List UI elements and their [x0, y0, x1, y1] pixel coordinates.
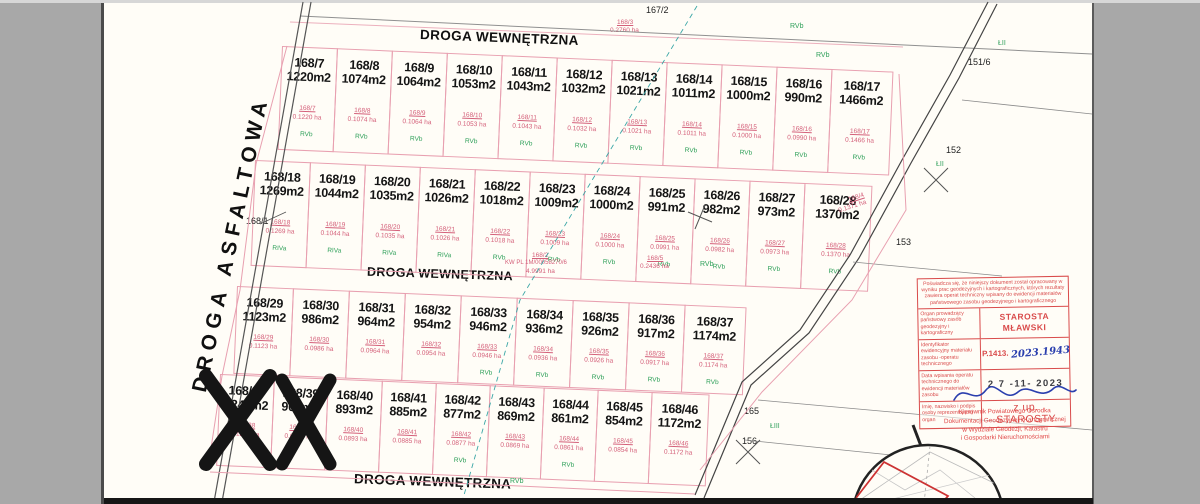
land-use-label: ŁII	[998, 40, 1006, 47]
parcel-168-44: 168/44861m2168/440.0861 haRVb	[540, 388, 599, 482]
parcel-label-168-1: 168/1	[246, 216, 269, 226]
soil-class-label	[235, 359, 290, 361]
parcel-168-7: 168/71220m2168/70.1220 haRVb	[278, 46, 338, 152]
parcel-pink-label: 168/440.0861 ha	[542, 434, 596, 454]
soil-class-label	[326, 452, 379, 454]
parcel-pink-label: 168/90.1064 ha	[390, 108, 445, 128]
soil-class-label: RVb	[499, 139, 553, 148]
parcel-pink-label: 168/350.0926 ha	[571, 347, 627, 367]
parcel-id-area-label: 168/71220m2	[281, 55, 336, 86]
scan-top-edge	[0, 0, 1200, 3]
parcel-pink-label: 168/300.0986 ha	[291, 335, 347, 355]
soil-class-label	[596, 463, 649, 465]
parcel-label-156: 156	[742, 436, 757, 446]
soil-class-label: RVb	[554, 142, 608, 151]
parcel-id-area-label: 168/461172m2	[651, 401, 708, 432]
parcel-168-40: 168/40893m2168/400.0893 ha	[324, 378, 383, 472]
soil-class-label: RVb	[626, 376, 681, 385]
parcel-pink-label: 168/100.1053 ha	[445, 111, 500, 131]
parcel-id-area-label: 168/371174m2	[684, 314, 745, 345]
parcel-pink-label: 168/320.0954 ha	[403, 340, 459, 360]
paper-left-edge	[101, 0, 104, 504]
paper-right-edge	[1092, 0, 1094, 504]
parcel-id-area-label: 168/36917m2	[628, 311, 684, 342]
parcel-pink-label: 168/150.1000 ha	[719, 122, 774, 142]
parcel-label-153: 153	[896, 237, 911, 247]
parcel-pink-label: 168/420.0877 ha	[434, 430, 488, 450]
parcel-pink-label: 168/370.1174 ha	[683, 351, 744, 371]
parcel-label-152: 152	[946, 145, 961, 155]
parcel-pink-label: 168/340.0936 ha	[515, 344, 571, 364]
stamp-row-label: Identyfikator ewidencyjny materiału zaso…	[919, 339, 982, 370]
parcel-pink-label: 168/380.1245 ha	[218, 421, 272, 441]
soil-class-label	[347, 364, 402, 366]
parcel-id-area-label: 168/42877m2	[435, 392, 489, 423]
soil-class-label: RVb	[458, 369, 513, 378]
parcel-id-area-label: 168/32954m2	[404, 302, 460, 333]
parcel-id-area-label: 168/30986m2	[292, 297, 348, 328]
stamp-row-authority: Organ prowadzący państwowy zasób geodezy…	[918, 307, 1069, 341]
land-use-label: ŁII	[936, 161, 944, 168]
parcel-pink-label: 168/460.1172 ha	[650, 439, 707, 459]
parcel-id-area-label: 168/151000m2	[721, 73, 776, 104]
parcel-168-20: 168/201035m2168/200.1035 haRIVa	[360, 165, 420, 273]
parcel-168-30: 168/30986m2168/300.0986 ha	[289, 288, 350, 378]
parcel-pink-label: 168/400.0893 ha	[326, 425, 380, 445]
parcel-168-38-crossed: 168/381245m2168/380.1245 ha	[216, 374, 275, 468]
soil-class-label: RIVa	[417, 251, 471, 260]
parcel-pink-label: 168/280.1370 ha	[802, 241, 869, 261]
soil-class-label: RVb	[790, 23, 804, 30]
soil-class-label: RVb	[389, 135, 443, 144]
soil-class-label: RVb	[433, 456, 486, 465]
parcel-pink-label: 168/270.0973 ha	[747, 238, 802, 258]
parcel-pink-label: 168/140.1011 ha	[665, 120, 720, 140]
parcel-pink-label: 168/390.0901 ha	[272, 423, 326, 443]
parcel-168-32: 168/32954m2168/320.0954 ha	[401, 293, 462, 383]
parcel-168-18: 168/181269m2168/180.1269 haRIVa	[251, 160, 311, 268]
stamp-identifier-value: P.1413. 2023.1943	[981, 338, 1071, 370]
soil-class-label: RVb	[514, 371, 569, 380]
parcel-id-area-label: 168/16990m2	[776, 76, 831, 107]
parcel-label-168-3: 168/3	[617, 19, 633, 26]
parcel-id-area-label: 168/41885m2	[381, 390, 435, 421]
parcel-168-43: 168/43869m2168/430.0869 ha	[486, 385, 545, 479]
parcel-area-168-3: 0.2760 ha	[610, 27, 639, 34]
parcel-id-area-label: 168/121032m2	[556, 67, 611, 98]
parcel-id-area-label: 168/241000m2	[584, 183, 639, 214]
parcel-area-168-5: 0.2436 ha	[640, 263, 669, 270]
parcel-id-area-label: 168/211026m2	[419, 176, 474, 207]
parcel-pink-label: 168/200.1035 ha	[363, 222, 418, 242]
parcel-168-10: 168/101053m2168/100.1053 haRVb	[443, 53, 503, 159]
parcel-id-area-label: 168/201035m2	[364, 174, 419, 205]
parcel-168-13: 168/131021m2168/130.1021 haRVb	[607, 60, 667, 166]
parcel-id-area-label: 168/111043m2	[501, 64, 556, 95]
parcel-pink-label: 168/210.1026 ha	[418, 225, 473, 245]
soil-class-label: RVb	[774, 151, 828, 160]
land-use-label: ŁIII	[770, 423, 780, 430]
parcel-168-15: 168/151000m2168/150.1000 haRVb	[717, 64, 777, 170]
parcel-id-area-label: 168/91064m2	[391, 60, 446, 91]
parcel-pink-label: 168/110.1043 ha	[500, 113, 555, 133]
identifier-prefix: P.1413.	[982, 349, 1009, 358]
soil-class-label: RVb	[816, 52, 830, 59]
soil-class-label: RIVa	[252, 244, 306, 253]
soil-class-label	[380, 454, 433, 456]
stamp-row-label: Organ prowadzący państwowy zasób geodezy…	[918, 308, 981, 339]
parcel-168-12: 168/121032m2168/120.1032 haRVb	[552, 57, 612, 163]
stamp-authority-value: STAROSTA MŁAWSKI	[980, 307, 1069, 339]
parcel-168-8: 168/81074m2168/80.1074 haRVb	[333, 48, 393, 154]
scanned-cadastral-map: DROGA WEWNĘTRZNA DROGA WEWNĘTRZNA DROGA …	[0, 0, 1200, 504]
parcel-id-area-label: 168/101053m2	[446, 62, 501, 93]
soil-class-label: RVb	[747, 265, 801, 274]
parcel-id-area-label: 168/131021m2	[611, 69, 666, 100]
parcel-id-area-label: 168/27973m2	[749, 190, 804, 221]
parcel-id-area-label: 168/221018m2	[474, 178, 529, 209]
parcel-id-area-label: 168/231009m2	[529, 181, 584, 212]
soil-class-label: RVb	[570, 373, 625, 382]
parcel-168-39-crossed: 168/39901m2168/390.0901 ha	[270, 376, 329, 470]
parcel-pink-label: 168/360.0917 ha	[627, 349, 683, 369]
parcel-pink-label: 168/410.0885 ha	[380, 427, 434, 447]
parcel-id-area-label: 168/25991m2	[639, 185, 694, 216]
parcel-168-41: 168/41885m2168/410.0885 ha	[378, 381, 437, 475]
stamp-certification-text: Poświadcza się, że niniejszy dokument zo…	[918, 277, 1068, 310]
soil-class-label	[291, 362, 346, 364]
parcel-168-24: 168/241000m2168/240.1000 haRVb	[580, 174, 640, 282]
parcel-id-area-label: 168/35926m2	[572, 309, 628, 340]
parcel-id-area-label: 168/26982m2	[694, 187, 749, 218]
parcel-id-area-label: 168/171466m2	[831, 78, 892, 109]
parcel-id-area-label: 168/381245m2	[219, 383, 273, 414]
parcel-168-33: 168/33946m2168/330.0946 haRVb	[457, 295, 518, 385]
parcel-id-area-label: 168/43869m2	[489, 394, 543, 425]
parcel-pink-label: 168/240.1000 ha	[583, 232, 638, 252]
soil-class-label: RVb	[664, 146, 718, 155]
soil-class-label: RVb	[802, 267, 868, 277]
parcel-168-29: 168/291123m2168/290.1123 ha	[233, 286, 294, 376]
parcel-168-42: 168/42877m2168/420.0877 haRVb	[432, 383, 491, 477]
soil-class-label: RVb	[609, 144, 663, 153]
parcel-id-area-label: 168/81074m2	[336, 57, 391, 88]
soil-class-label: RVb	[682, 378, 742, 388]
stamp-footer-title: Kierownik Powiatowego Ośrodka Dokumentac…	[920, 407, 1091, 445]
parcel-id-area-label: 168/44861m2	[543, 397, 597, 428]
parcel-id-area-label: 168/181269m2	[254, 169, 309, 200]
parcel-id-area-label: 168/40893m2	[327, 388, 381, 419]
parcel-168-16: 168/16990m2168/160.0990 haRVb	[772, 67, 832, 173]
parcel-pink-label: 168/120.1032 ha	[555, 115, 610, 135]
soil-class-label	[650, 465, 706, 467]
soil-class-label: RIVa	[307, 247, 361, 256]
parcel-id-area-label: 168/33946m2	[460, 304, 516, 335]
soil-class-label: RIVa	[362, 249, 416, 258]
parcel-label-168-2: 168/2	[532, 252, 548, 259]
soil-class-label	[272, 449, 325, 451]
stamp-row-identifier: Identyfikator ewidencyjny materiału zaso…	[919, 338, 1070, 372]
parcel-id-area-label: 168/191044m2	[309, 171, 364, 202]
soil-class-label: RVb	[334, 133, 388, 142]
parcel-pink-label: 168/450.0854 ha	[596, 437, 650, 457]
parcel-id-area-label: 168/39901m2	[273, 385, 327, 416]
parcel-168-17: 168/171466m2168/170.1466 haRVb	[827, 69, 893, 176]
parcel-168-31: 168/31964m2168/310.0964 ha	[345, 291, 406, 381]
parcel-pink-label: 168/70.1220 ha	[280, 104, 335, 124]
parcel-168-34: 168/34936m2168/340.0936 haRVb	[513, 298, 574, 388]
soil-class-label: RVb	[700, 261, 714, 268]
parcel-168-45: 168/45854m2168/450.0854 ha	[594, 390, 653, 484]
parcel-pink-label: 168/190.1044 ha	[308, 220, 363, 240]
parcel-pink-label: 168/290.1123 ha	[235, 333, 291, 353]
handwritten-identifier: 2023.1943	[1010, 345, 1070, 361]
parcel-label-151-6: 151/6	[968, 57, 991, 67]
parcel-pink-label: 168/160.0990 ha	[774, 124, 829, 144]
soil-class-label	[488, 459, 541, 461]
parcel-168-27: 168/27973m2168/270.0973 haRVb	[745, 181, 805, 289]
parcel-pink-label: 168/80.1074 ha	[335, 106, 390, 126]
parcel-pink-label: 168/430.0869 ha	[488, 432, 542, 452]
soil-class-label: RVb	[279, 130, 333, 139]
parcel-id-area-label: 168/31964m2	[348, 300, 404, 331]
parcel-168-9: 168/91064m2168/90.1064 haRVb	[388, 51, 448, 157]
parcel-pink-label: 168/310.0964 ha	[347, 337, 403, 357]
parcel-168-46: 168/461172m2168/460.1172 ha	[648, 392, 710, 486]
parcel-label-168-5: 168/5	[647, 255, 663, 262]
parcel-id-area-label: 168/34936m2	[516, 307, 572, 338]
parcel-pink-label: 168/250.0991 ha	[638, 234, 693, 254]
parcel-id-area-label: 168/291123m2	[236, 295, 292, 326]
parcel-168-36: 168/36917m2168/360.0917 haRVb	[625, 302, 686, 392]
kw-register-number: KW PL 1M/00058270/6	[505, 260, 567, 266]
parcel-pink-label: 168/130.1021 ha	[610, 118, 665, 138]
parcel-168-14: 168/141011m2168/140.1011 haRVb	[662, 62, 722, 168]
soil-class-label: RVb	[582, 258, 636, 267]
soil-class-label: RVb	[541, 461, 594, 470]
soil-class-label: RVb	[510, 478, 524, 485]
soil-class-label: RVb	[444, 137, 498, 146]
handwritten-signature	[950, 380, 1080, 410]
parcel-168-19: 168/191044m2168/190.1044 haRIVa	[306, 162, 366, 270]
parcel-168-26: 168/26982m2168/260.0982 haRVb	[690, 178, 750, 286]
parcel-id-area-label: 168/45854m2	[597, 399, 651, 430]
soil-class-label	[218, 447, 271, 449]
scan-bottom-edge	[104, 498, 1093, 504]
parcel-area-168-2: 4.9991 ha	[526, 268, 555, 275]
parcel-pink-label: 168/330.0946 ha	[459, 342, 515, 362]
soil-class-label	[403, 366, 458, 368]
soil-class-label: RVb	[719, 149, 773, 158]
parcel-pink-label: 168/230.1009 ha	[528, 229, 583, 249]
parcel-pink-label: 168/220.1018 ha	[473, 227, 528, 247]
parcel-168-21: 168/211026m2168/210.1026 haRIVa	[415, 167, 475, 275]
parcel-id-area-label: 168/141011m2	[666, 71, 721, 102]
parcel-168-11: 168/111043m2168/110.1043 haRVb	[497, 55, 557, 161]
soil-class-label: RVb	[829, 153, 889, 163]
parcel-label-165: 165	[744, 406, 759, 416]
parcel-168-37: 168/371174m2168/370.1174 haRVb	[681, 305, 747, 396]
parcel-168-35: 168/35926m2168/350.0926 haRVb	[569, 300, 630, 390]
parcel-pink-label: 168/170.1466 ha	[829, 127, 890, 147]
parcel-label-167-2: 167/2	[646, 5, 669, 15]
parcel-pink-label: 168/260.0982 ha	[692, 236, 747, 256]
